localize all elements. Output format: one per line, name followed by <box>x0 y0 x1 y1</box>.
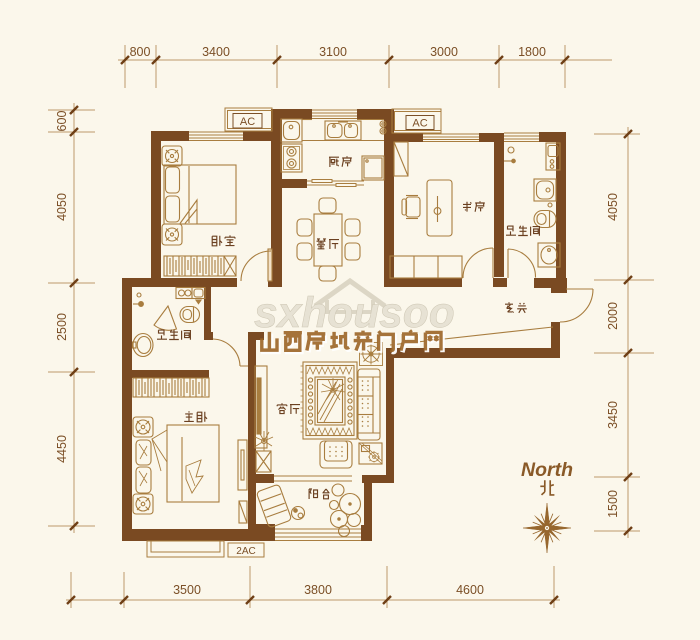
svg-text:3500: 3500 <box>173 583 201 597</box>
svg-text:4050: 4050 <box>606 193 620 221</box>
svg-text:3400: 3400 <box>202 45 230 59</box>
svg-text:4600: 4600 <box>456 583 484 597</box>
svg-text:2AC: 2AC <box>236 546 255 557</box>
svg-text:sxhousoo: sxhousoo <box>254 290 455 337</box>
svg-text:1800: 1800 <box>518 45 546 59</box>
svg-text:1500: 1500 <box>606 490 620 518</box>
svg-text:3000: 3000 <box>430 45 458 59</box>
svg-text:North: North <box>521 459 573 481</box>
svg-text:3450: 3450 <box>606 401 620 429</box>
svg-text:AC: AC <box>240 116 255 128</box>
svg-text:4050: 4050 <box>55 193 69 221</box>
svg-text:2500: 2500 <box>55 313 69 341</box>
svg-text:AC: AC <box>412 118 427 130</box>
svg-text:4450: 4450 <box>55 435 69 463</box>
svg-text:3800: 3800 <box>304 583 332 597</box>
svg-text:800: 800 <box>130 45 151 59</box>
svg-text:3100: 3100 <box>319 45 347 59</box>
svg-text:2000: 2000 <box>606 302 620 330</box>
svg-text:600: 600 <box>55 111 69 132</box>
